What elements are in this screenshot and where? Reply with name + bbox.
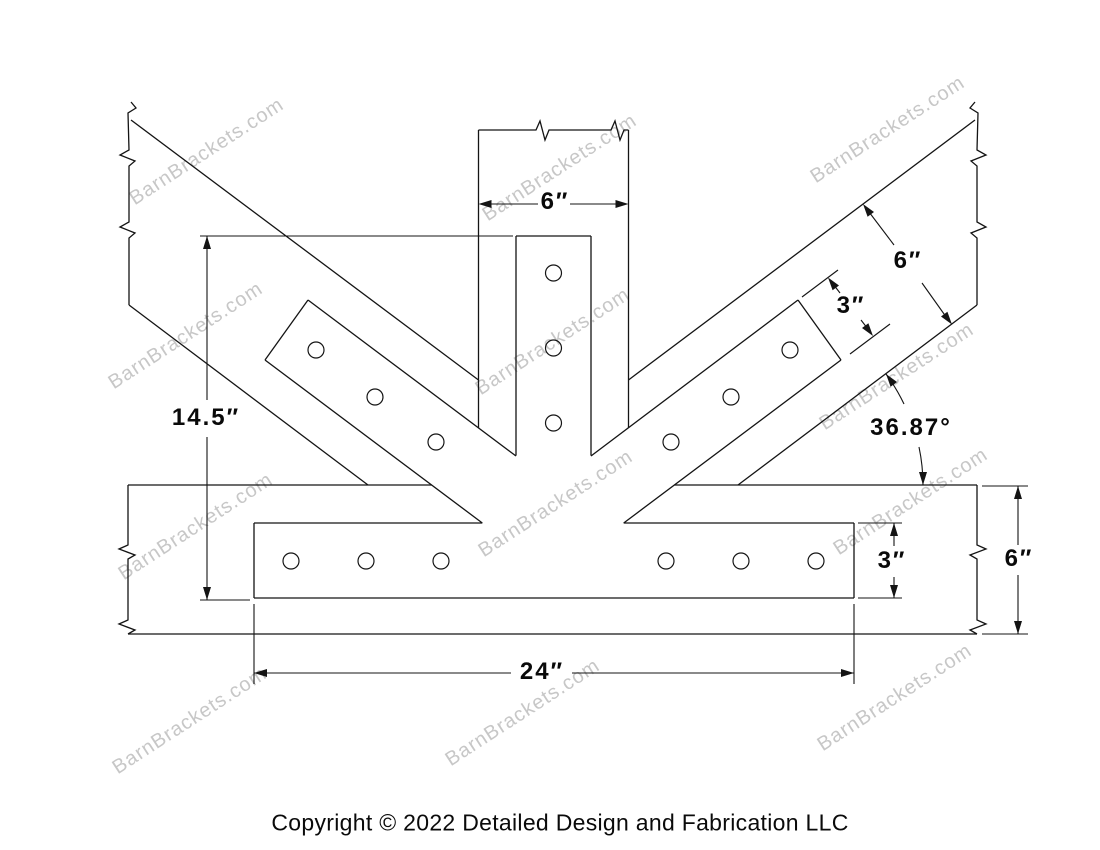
bracket-center-strap	[516, 236, 591, 456]
dim-label-chord-strap-height: 3″	[878, 547, 907, 575]
dim-label-web-angle: 36.87°	[870, 414, 952, 442]
dim-label-web-width: 6″	[894, 247, 923, 275]
fan-bracket-drawing-page: BarnBrackets.com BarnBrackets.com BarnBr…	[0, 0, 1100, 850]
dim-label-overall-height: 14.5″	[172, 404, 240, 432]
dim-label-chord-height: 6″	[1005, 545, 1034, 573]
king-post-outline	[479, 121, 629, 428]
dim-label-web-strap-width: 3″	[837, 292, 866, 320]
bottom-chord-outline	[119, 485, 986, 634]
dim-label-strap-length: 24″	[520, 658, 564, 686]
dim-label-post-width: 6″	[541, 188, 570, 216]
copyright-text: Copyright © 2022 Detailed Design and Fab…	[271, 810, 848, 837]
bracket-bottom-strap	[254, 523, 854, 598]
